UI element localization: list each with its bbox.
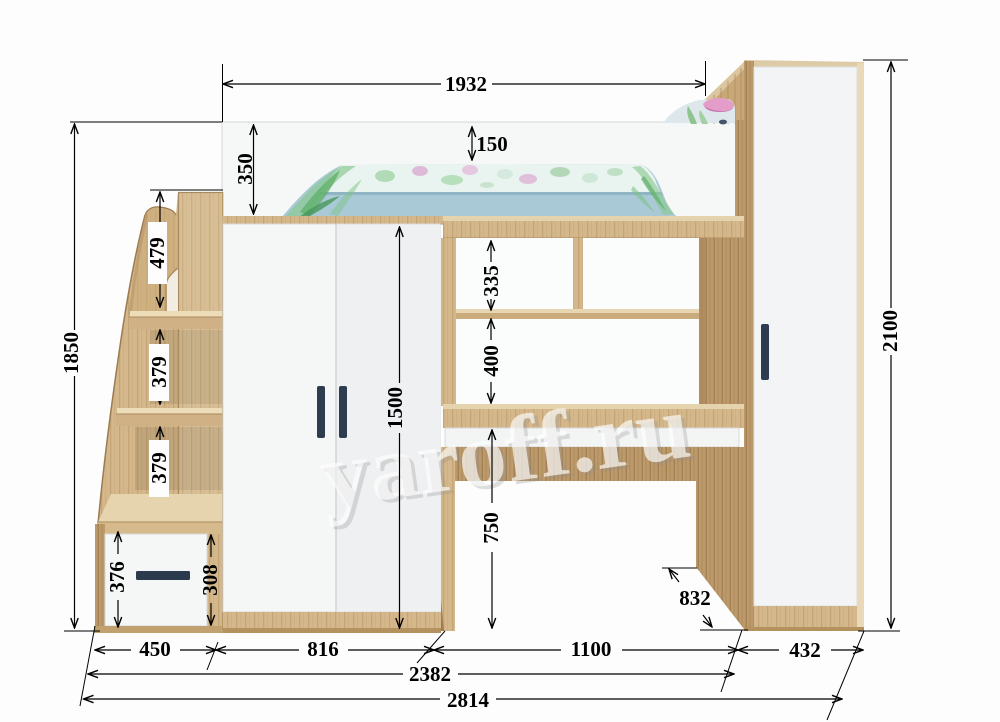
svg-text:1850: 1850 — [59, 332, 83, 374]
svg-text:335: 335 — [479, 265, 503, 297]
svg-text:832: 832 — [679, 586, 711, 610]
svg-text:432: 432 — [789, 638, 821, 662]
svg-text:2100: 2100 — [878, 310, 902, 352]
svg-text:150: 150 — [476, 132, 508, 156]
svg-text:376: 376 — [105, 561, 129, 593]
svg-text:1100: 1100 — [571, 637, 612, 661]
svg-text:2382: 2382 — [409, 662, 451, 686]
svg-text:308: 308 — [198, 564, 222, 596]
svg-text:750: 750 — [479, 512, 503, 544]
svg-text:379: 379 — [147, 356, 171, 388]
svg-text:2814: 2814 — [447, 688, 490, 712]
svg-text:379: 379 — [147, 452, 171, 484]
svg-text:450: 450 — [139, 637, 171, 661]
svg-text:816: 816 — [307, 637, 339, 661]
svg-text:400: 400 — [479, 345, 503, 377]
svg-text:1932: 1932 — [445, 72, 487, 96]
svg-text:479: 479 — [145, 237, 169, 269]
svg-text:1500: 1500 — [383, 387, 407, 429]
svg-text:350: 350 — [233, 153, 257, 185]
